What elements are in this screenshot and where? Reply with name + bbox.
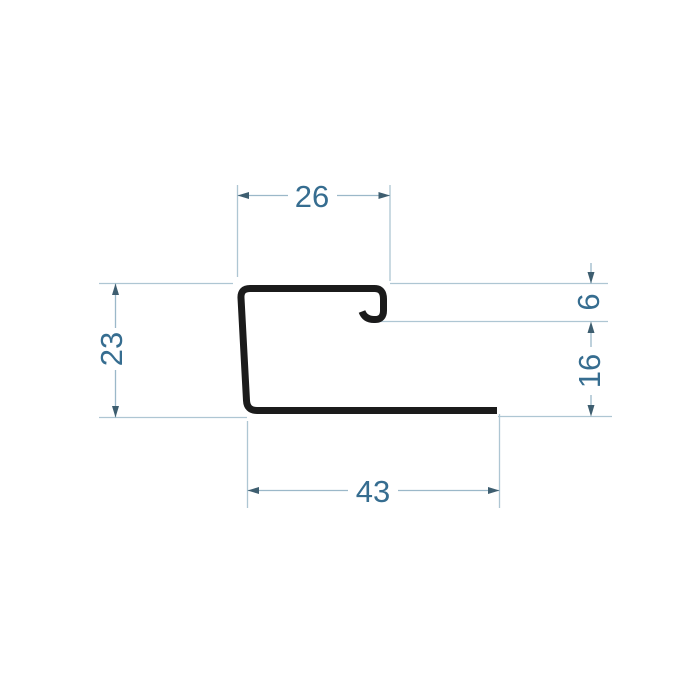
arrow-left-icon [248, 487, 260, 494]
arrow-right-icon [379, 192, 391, 199]
dimension-top-width: 26 [238, 179, 391, 214]
profile-drawing: 26 23 6 16 43 [0, 0, 700, 700]
arrow-down-icon [588, 405, 595, 417]
arrow-left-icon [238, 192, 250, 199]
dim-label-hook-height: 6 [571, 293, 606, 310]
arrow-right-icon [488, 487, 500, 494]
arrow-down-icon [588, 272, 595, 284]
dimension-hook-height: 6 [571, 263, 606, 311]
dimension-left-height: 23 [94, 284, 129, 418]
dimension-bottom-width: 43 [248, 474, 500, 509]
technical-drawing-canvas: 26 23 6 16 43 [0, 0, 700, 700]
profile-outline [241, 289, 497, 411]
dim-label-left-height: 23 [94, 332, 129, 366]
arrow-down-icon [112, 406, 119, 418]
arrow-up-icon [588, 322, 595, 334]
dim-label-top-width: 26 [295, 179, 329, 214]
dim-label-bottom-width: 43 [356, 474, 390, 509]
arrow-up-icon [112, 284, 119, 296]
extension-lines [99, 185, 612, 508]
dimension-right-height: 16 [572, 322, 607, 417]
dim-label-right-height: 16 [572, 354, 607, 388]
